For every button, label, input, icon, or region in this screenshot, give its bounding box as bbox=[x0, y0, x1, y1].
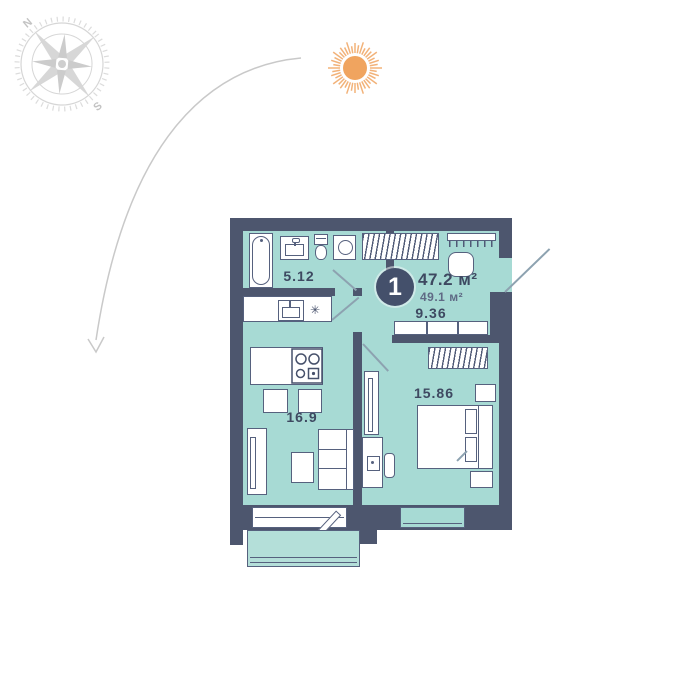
bathtub-icon bbox=[249, 233, 273, 288]
wall-right-lower bbox=[499, 292, 512, 530]
kitchen-counter-top: ✳ bbox=[243, 296, 332, 322]
compass-north-label: N bbox=[21, 16, 35, 30]
fridge-icon: ✳ bbox=[310, 304, 320, 316]
stool-icon bbox=[298, 389, 322, 413]
compass-south-label: S bbox=[91, 100, 104, 114]
desk-icon bbox=[362, 437, 383, 488]
wall-right-upper bbox=[499, 218, 512, 258]
bedroom-cabinet-icon bbox=[364, 371, 379, 435]
balcony-glazing bbox=[250, 557, 357, 563]
wall-hall-bedroom bbox=[392, 335, 499, 343]
hallway-area-label: 9.36 bbox=[406, 305, 456, 321]
wall-kitchen-bedroom bbox=[353, 332, 362, 505]
stool-icon bbox=[263, 389, 288, 413]
balcony-area bbox=[247, 530, 360, 567]
bedroom-area-label: 15.86 bbox=[408, 385, 460, 401]
tv-stand-icon bbox=[247, 428, 267, 495]
bathroom-sink-icon bbox=[280, 236, 309, 260]
hall-hanger-hooks-icon bbox=[449, 241, 494, 247]
shoe-cabinet-icon bbox=[394, 321, 488, 335]
coffee-table-icon bbox=[291, 452, 314, 483]
unit-number-badge: 1 bbox=[376, 268, 414, 306]
bedroom-wardrobe-icon bbox=[428, 347, 488, 369]
bedroom-window bbox=[400, 507, 465, 528]
compass-rose-icon: N S bbox=[0, 0, 136, 140]
bathroom-area-label: 5.12 bbox=[276, 268, 322, 284]
toilet-bowl-icon bbox=[315, 245, 327, 260]
sofa-icon bbox=[318, 429, 354, 490]
pillow-icon bbox=[465, 437, 477, 462]
sun-icon bbox=[328, 42, 382, 93]
stove-icon bbox=[291, 348, 323, 384]
washing-machine-icon bbox=[333, 235, 356, 260]
wall-balcony-stub bbox=[360, 530, 377, 544]
toilet-icon bbox=[314, 234, 328, 245]
area-living-label: 47.2 м² bbox=[418, 270, 478, 290]
wall-bathroom-bottom bbox=[243, 288, 335, 296]
wall-left bbox=[230, 218, 243, 545]
shelf-icon bbox=[475, 384, 496, 402]
bed-headboard-icon bbox=[478, 405, 493, 469]
desk-chair-icon bbox=[384, 453, 395, 478]
hall-hanger-shelf-icon bbox=[447, 233, 496, 241]
pillow-icon bbox=[465, 409, 477, 434]
area-total-label: 49.1 м² bbox=[420, 290, 463, 304]
hall-wardrobe-icon bbox=[362, 233, 439, 260]
floorplan-canvas: N S bbox=[0, 0, 700, 700]
wall-top bbox=[230, 218, 512, 231]
nightstand-icon bbox=[470, 471, 493, 488]
